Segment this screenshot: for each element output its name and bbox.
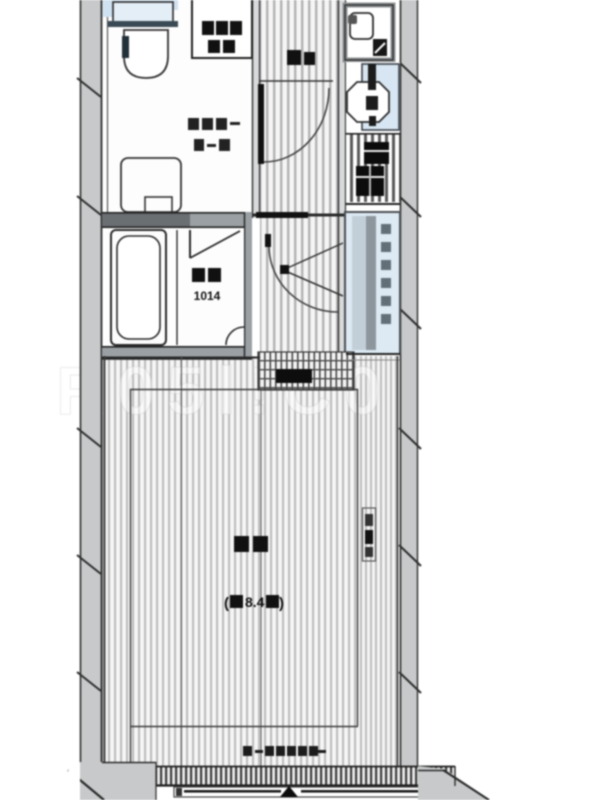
svg-text:1014: 1014 [194, 289, 221, 303]
svg-text:(: ( [224, 595, 229, 612]
svg-text:8.4: 8.4 [245, 594, 265, 610]
svg-text:): ) [279, 595, 284, 612]
